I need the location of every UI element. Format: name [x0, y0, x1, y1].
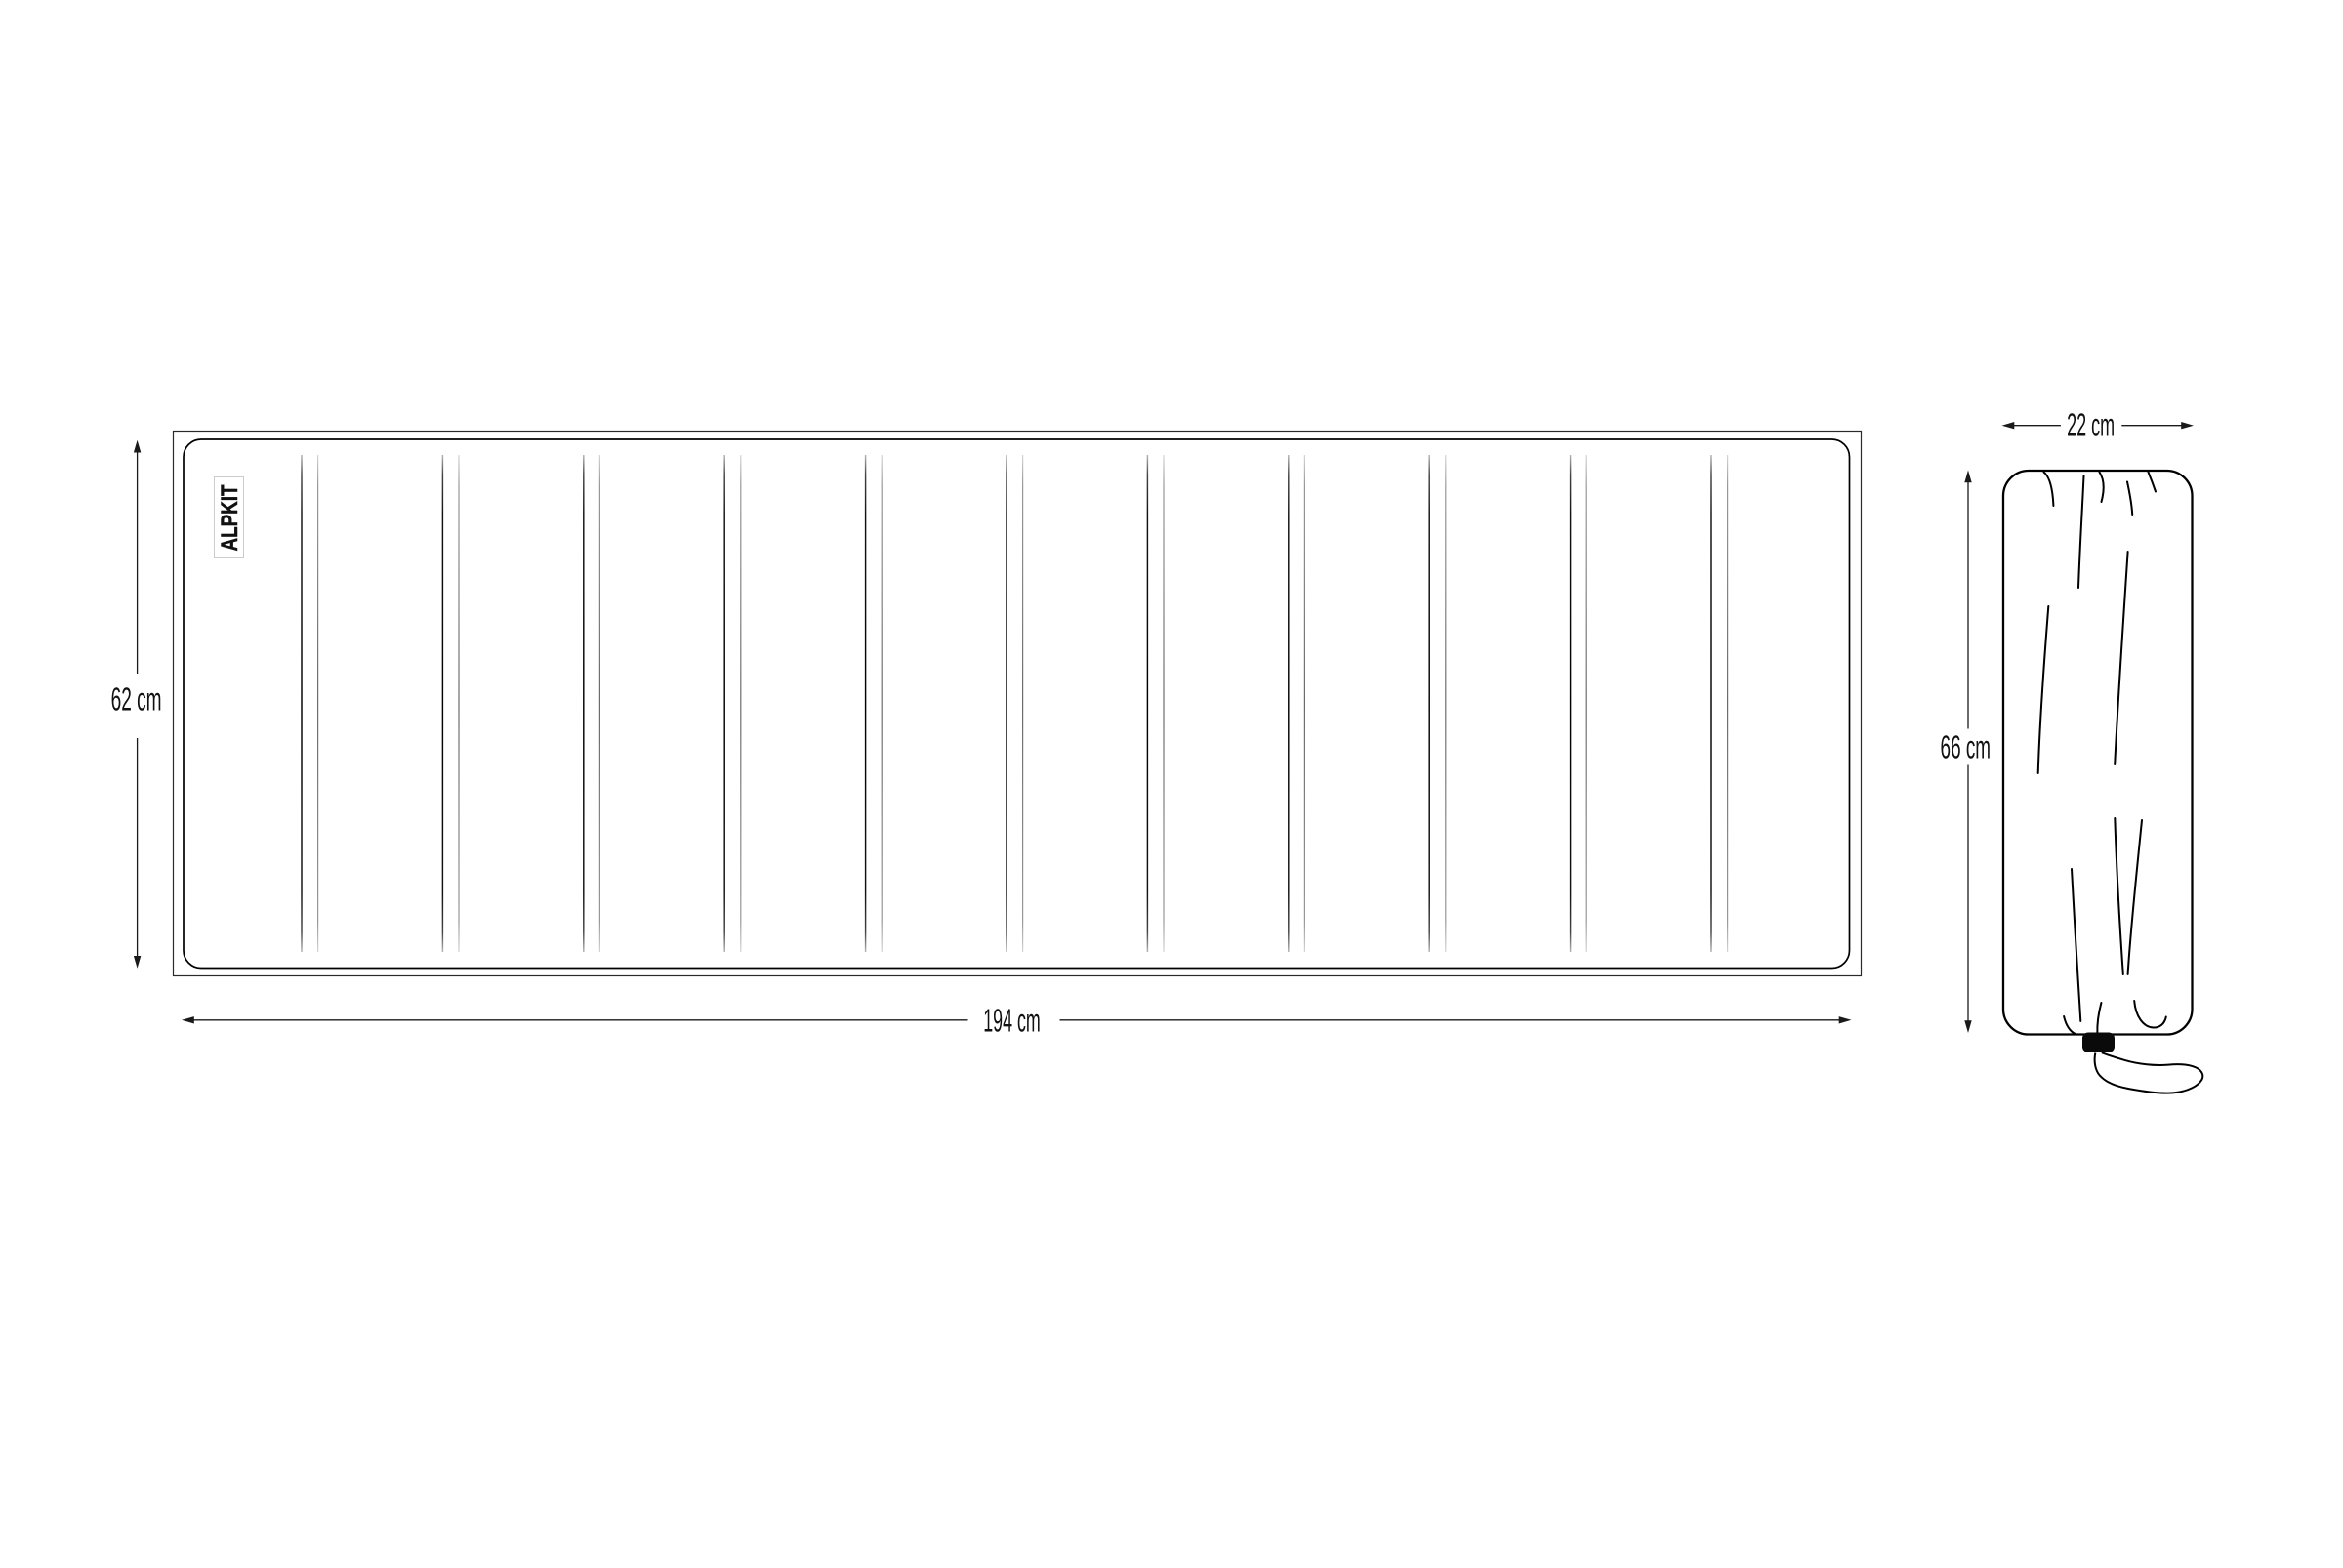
svg-text:62 cm: 62 cm [111, 682, 162, 719]
svg-text:66 cm: 66 cm [1941, 730, 1992, 766]
svg-text:22 cm: 22 cm [2067, 408, 2115, 444]
svg-text:194 cm: 194 cm [983, 1004, 1041, 1040]
svg-text:ALPKIT: ALPKIT [217, 484, 243, 551]
